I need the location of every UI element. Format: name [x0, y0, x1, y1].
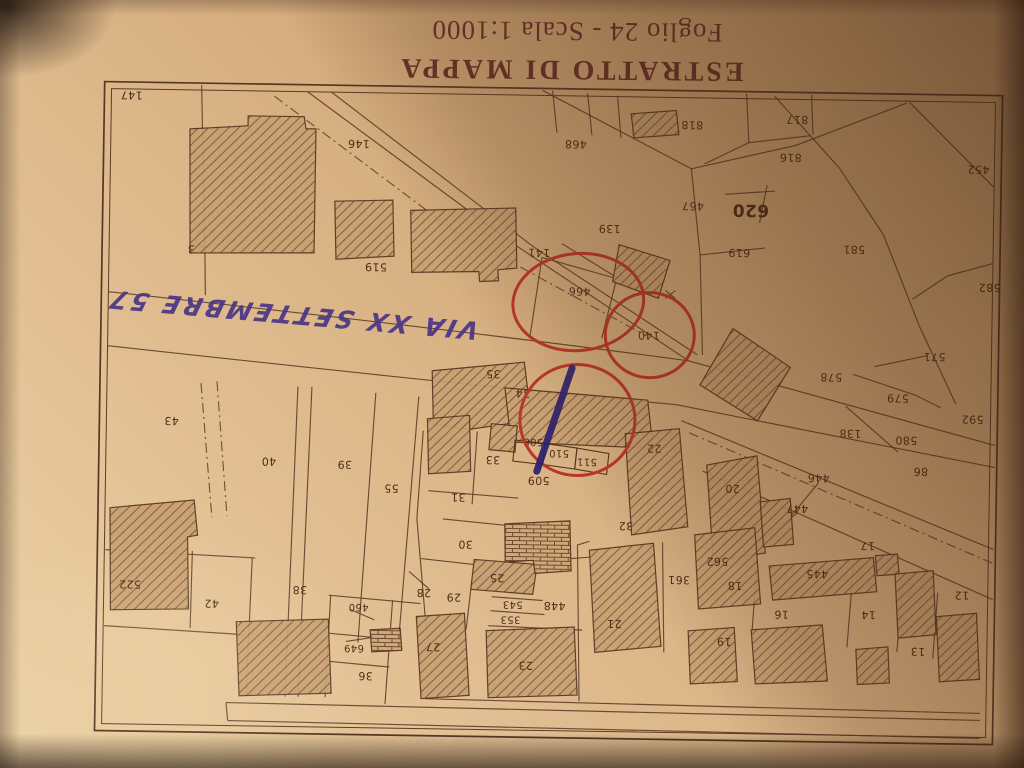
photo-of-cadastral-map: Foglio 24 - Scala 1:1000 ESTRATTO DI MAP…	[0, 0, 1024, 768]
parcel-number-146: 146	[348, 137, 370, 150]
parcel-number-816: 816	[779, 151, 801, 164]
parcel-number-468: 468	[565, 137, 587, 150]
parcel-number-592: 592	[961, 413, 983, 426]
parcel-number-30: 30	[458, 538, 473, 551]
parcel-number-35: 35	[486, 367, 501, 380]
parcel-number-3: 3	[187, 242, 195, 255]
parcel-number-29: 29	[446, 590, 461, 603]
parcel-number-580: 580	[895, 434, 917, 447]
parcel-number-620: 620	[732, 199, 769, 220]
parcel-number-509: 509	[527, 474, 549, 487]
parcel-number-817: 817	[786, 113, 808, 126]
parcel-number-39: 39	[337, 458, 352, 471]
parcel-number-562: 562	[706, 555, 728, 568]
parcel-number-147: 147	[120, 88, 142, 101]
parcel-number-18: 18	[727, 579, 742, 592]
parcel-number-139: 139	[598, 222, 620, 235]
parcel-number-467: 467	[682, 199, 704, 212]
parcel-number-445: 445	[806, 567, 828, 580]
parcel-number-31: 31	[451, 491, 466, 504]
parcel-number-12: 12	[954, 588, 969, 601]
parcel-number-43: 43	[164, 414, 179, 427]
parcel-number-86: 86	[913, 465, 928, 478]
parcel-number-452: 452	[967, 163, 989, 176]
parcel-number-27: 27	[425, 640, 440, 653]
parcel-number-17: 17	[860, 539, 875, 552]
parcel-number-578: 578	[820, 370, 842, 383]
parcel-number-141: 141	[528, 246, 550, 259]
parcel-number-138: 138	[839, 427, 861, 440]
parcel-number-448: 448	[543, 599, 565, 612]
parcel-number-619: 619	[728, 246, 750, 259]
parcel-number-36: 36	[358, 669, 373, 682]
parcel-number-579: 579	[887, 391, 909, 404]
parcel-number-582: 582	[978, 281, 1000, 294]
parcel-number-16: 16	[774, 608, 789, 621]
parcel-number-446: 446	[807, 471, 829, 484]
parcel-number-42: 42	[204, 597, 219, 610]
parcel-number-20: 20	[725, 482, 740, 495]
parcel-number-581: 581	[843, 243, 865, 256]
parcel-number-447: 447	[786, 502, 808, 515]
parcel-number-40: 40	[261, 455, 276, 468]
parcel-number-13: 13	[910, 645, 925, 658]
parcel-number-25: 25	[489, 571, 504, 584]
parcel-number-361: 361	[668, 573, 690, 586]
parcel-number-38: 38	[292, 583, 307, 596]
parcel-number-14: 14	[861, 608, 876, 621]
parcel-number-519: 519	[365, 260, 387, 273]
parcel-number-28: 28	[416, 586, 431, 599]
parcel-number-19: 19	[716, 635, 731, 648]
parcel-number-522: 522	[119, 577, 141, 590]
parcel-number-55: 55	[384, 482, 399, 495]
parcel-number-571: 571	[923, 350, 945, 363]
parcel-number-460: 460	[348, 601, 368, 612]
parcel-number-818: 818	[681, 118, 703, 131]
parcel-number-23: 23	[518, 659, 533, 672]
parcel-number-32: 32	[618, 519, 633, 532]
map-extract: 1471463519141466139140468467818817816620…	[0, 0, 1024, 768]
parcel-number-649: 649	[344, 642, 364, 653]
paper-sheet: Foglio 24 - Scala 1:1000 ESTRATTO DI MAP…	[0, 0, 1024, 768]
parcel-number-353: 353	[500, 613, 520, 624]
parcel-number-543: 543	[502, 598, 522, 609]
parcel-labels-layer: 1471463519141466139140468467818817816620…	[0, 0, 1024, 768]
parcel-number-33: 33	[485, 453, 500, 466]
parcel-number-22: 22	[647, 442, 662, 455]
parcel-number-21: 21	[607, 617, 622, 630]
